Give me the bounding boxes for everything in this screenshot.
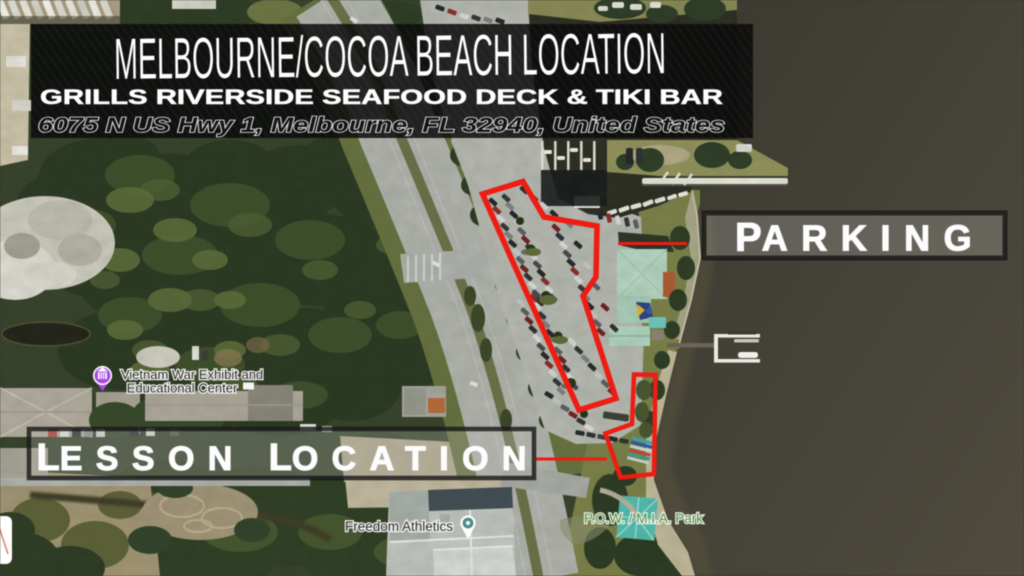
svg-text:Freedom Athletics: Freedom Athletics [345, 519, 453, 534]
svg-text:6075 N US Hwy 1, Melbourne, FL: 6075 N US Hwy 1, Melbourne, FL 32940, Un… [38, 114, 725, 137]
svg-text:MELBOURNE/COCOA BEACH LOCATION: MELBOURNE/COCOA BEACH LOCATION [114, 21, 667, 92]
svg-text:P.O.W. / M.I.A. Park: P.O.W. / M.I.A. Park [584, 511, 703, 526]
svg-text:LESSON LOCATION: LESSON LOCATION [37, 437, 540, 479]
svg-text:Educational Center: Educational Center [127, 381, 238, 396]
svg-text:GRILLS RIVERSIDE SEAFOOD DECK: GRILLS RIVERSIDE SEAFOOD DECK & TIKI BAR [40, 86, 723, 109]
svg-text:PARKING: PARKING [735, 216, 985, 260]
